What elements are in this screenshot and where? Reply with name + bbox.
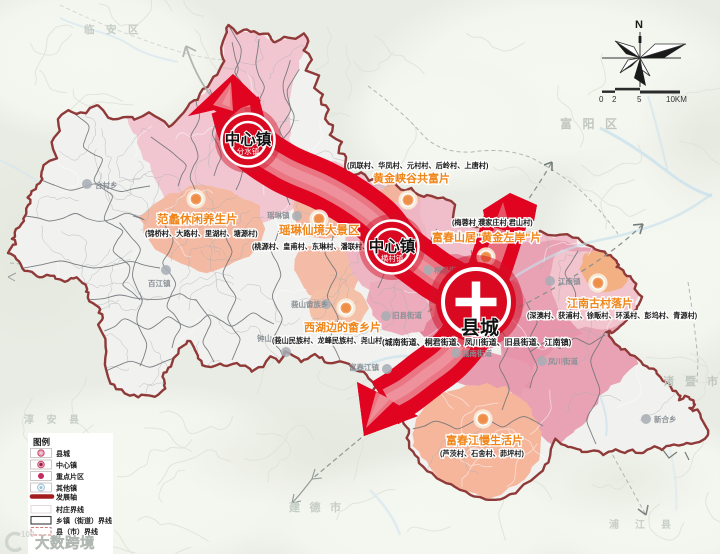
svg-text:富春江慢生活片: 富春江慢生活片 (446, 433, 523, 447)
svg-text:中心镇: 中心镇 (225, 130, 272, 149)
svg-text:黄金峡谷共富片: 黄金峡谷共富片 (373, 171, 450, 185)
svg-text:10KM: 10KM (666, 95, 687, 104)
svg-text:凤川街道: 凤川街道 (548, 356, 578, 366)
svg-text:(梅蓉村 濮家庄村 君山村): (梅蓉村 濮家庄村 君山村) (452, 218, 533, 227)
svg-text:横村镇: 横村镇 (381, 253, 404, 263)
svg-text:建德市: 建德市 (289, 500, 351, 514)
svg-text:西湖边的畲乡片: 西湖边的畲乡片 (304, 320, 381, 334)
svg-text:重点片区: 重点片区 (56, 472, 84, 481)
svg-text:中心镇: 中心镇 (56, 461, 77, 470)
svg-text:(锦桥村、大路村、里湖村、塘源村): (锦桥村、大路村、里湖村、塘源村) (145, 229, 258, 238)
svg-text:(芦茨村、石舍村、茆坪村): (芦茨村、石舍村、茆坪村) (440, 449, 524, 458)
svg-text:(莪山民族村、龙峰民族村、尧山村): (莪山民族村、龙峰民族村、尧山村) (272, 336, 385, 345)
svg-text:100: 100 (21, 530, 35, 539)
svg-text:县（市）界线: 县（市）界线 (56, 527, 98, 536)
svg-text:N: N (635, 19, 643, 31)
svg-text:瑶琳镇: 瑶琳镇 (267, 210, 290, 220)
svg-text:莪山畲族乡: 莪山畲族乡 (291, 299, 329, 309)
svg-text:诸暨市: 诸暨市 (663, 374, 720, 388)
svg-text:新合乡: 新合乡 (654, 414, 677, 424)
svg-text:江南古村落片: 江南古村落片 (567, 296, 633, 310)
svg-text:(深澳村、获浦村、徐畈村、环溪村、彭坞村、青源村): (深澳村、获浦村、徐畈村、环溪村、彭坞村、青源村) (527, 311, 698, 320)
svg-text:淳安县: 淳安县 (24, 413, 92, 426)
svg-text:百江镇: 百江镇 (148, 278, 171, 288)
svg-text:浦江县: 浦江县 (609, 518, 687, 531)
svg-text:县城: 县城 (56, 449, 70, 458)
svg-text:(城南街道、桐君街道、凤川街道、旧县街道、江南镇): (城南街道、桐君街道、凤川街道、旧县街道、江南镇) (382, 337, 572, 347)
svg-text:旧县街道: 旧县街道 (392, 310, 422, 320)
svg-text:5: 5 (637, 95, 642, 104)
svg-text:分水镇: 分水镇 (237, 146, 260, 156)
svg-text:乡镇（街道）界线: 乡镇（街道）界线 (56, 516, 112, 525)
svg-text:江南镇: 江南镇 (558, 276, 581, 286)
svg-text:发展轴: 发展轴 (55, 493, 77, 502)
svg-text:瑶琳仙境大景区: 瑶琳仙境大景区 (279, 223, 360, 237)
svg-text:0: 0 (599, 95, 604, 104)
svg-text:其他镇: 其他镇 (56, 484, 77, 493)
svg-text:大数跨境: 大数跨境 (35, 534, 95, 552)
svg-text:图例: 图例 (33, 437, 51, 447)
svg-text:中心镇: 中心镇 (369, 237, 416, 256)
svg-text:县城: 县城 (461, 316, 499, 339)
svg-text:富阳区: 富阳区 (560, 116, 628, 131)
svg-text:富春山居"黄金左岸"片: 富春山居"黄金左岸"片 (432, 230, 541, 244)
svg-text:村庄界线: 村庄界线 (56, 505, 84, 514)
svg-text:临安区: 临安区 (84, 23, 150, 36)
svg-text:范蠡休闲养生片: 范蠡休闲养生片 (157, 212, 238, 226)
svg-text:2: 2 (612, 95, 617, 104)
svg-text:合村乡: 合村乡 (95, 180, 118, 190)
svg-text:城南街道: 城南街道 (462, 348, 492, 358)
svg-text:富春江镇: 富春江镇 (349, 362, 379, 372)
svg-text:(凤联村、华凤村、元村村、后岭村、上唐村): (凤联村、华凤村、元村村、后岭村、上唐村) (347, 161, 489, 170)
